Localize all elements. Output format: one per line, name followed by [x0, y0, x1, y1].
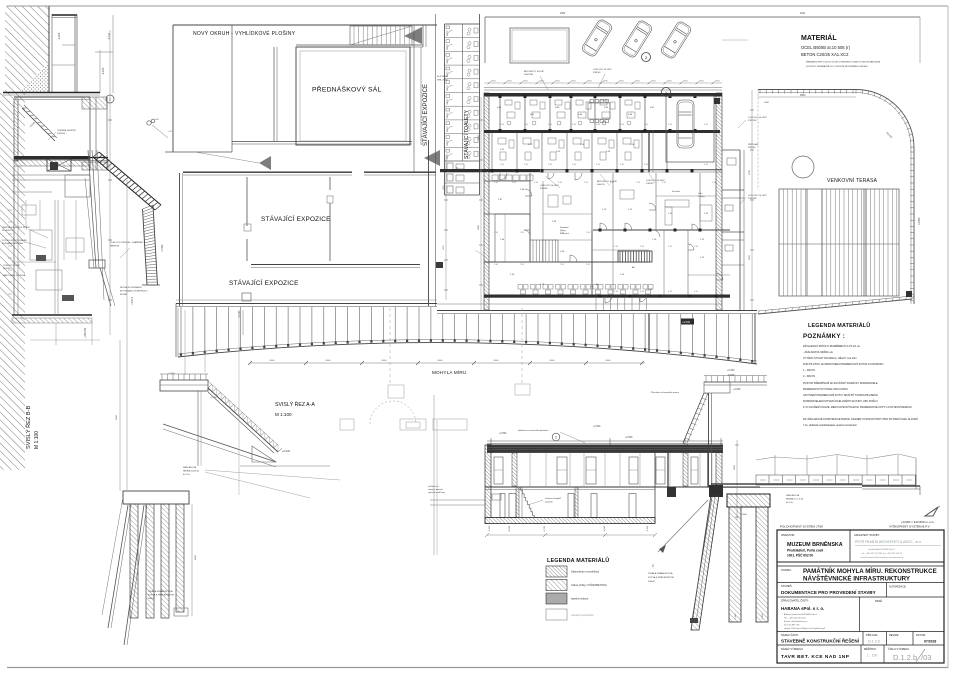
- svg-text:POD SLOUPY PROVEDEN: POD SLOUPY PROVEDEN: [2, 240, 27, 242]
- svg-text:AUTORIZACE:: AUTORIZACE:: [889, 585, 907, 589]
- svg-text:NAKOTVENÝ DO ZDIVA: NAKOTVENÝ DO ZDIVA: [3, 274, 26, 277]
- svg-text:1.14: 1.14: [694, 291, 698, 293]
- svg-text:1.14: 1.14: [548, 164, 552, 166]
- svg-text:2/62/90: 2/62/90: [646, 183, 654, 185]
- svg-text:+3 500: +3 500: [625, 436, 633, 439]
- svg-text:SIRL 200m: SIRL 200m: [437, 80, 448, 82]
- svg-text:1.14: 1.14: [572, 164, 576, 166]
- svg-text:Sálezobeton monolitický: Sálezobeton monolitický: [571, 570, 600, 574]
- svg-text:-7.100: -7.100: [762, 613, 764, 620]
- svg-text:D.1.2.b: D.1.2.b: [868, 640, 880, 644]
- svg-text:+3.91.5: +3.91.5: [131, 296, 134, 305]
- svg-text:2/62/185: 2/62/185: [748, 198, 757, 200]
- svg-text:+0.000: +0.000: [282, 449, 291, 453]
- svg-text:1 : 100: 1 : 100: [867, 654, 877, 658]
- svg-text:1.14: 1.14: [596, 124, 600, 126]
- svg-text:1.14: 1.14: [712, 182, 716, 184]
- svg-text:LEGENDA MATERIÁLŮ: LEGENDA MATERIÁLŮ: [547, 556, 609, 564]
- svg-text:1.14: 1.14: [520, 232, 524, 234]
- svg-text:přídavová vrstva lehčený beton: přídavová vrstva lehčený beton: [518, 429, 549, 432]
- svg-text:5000: 5000: [606, 360, 612, 362]
- svg-text:LEGENDA MATERIÁLŮ: LEGENDA MATERIÁLŮ: [808, 321, 870, 329]
- svg-text:1.14: 1.14: [662, 182, 666, 184]
- svg-text:ZÁKLADOVÁ PATKA O ROZMĚRECH 4.: ZÁKLADOVÁ PATKA O ROZMĚRECH 4.4*4.34 ,2e: [803, 345, 861, 348]
- svg-text:5000: 5000: [494, 360, 500, 362]
- svg-text:1.14: 1.14: [644, 124, 648, 126]
- svg-text:-7.100: -7.100: [735, 613, 737, 620]
- svg-text:OCELOVÝ SLOUP: OCELOVÝ SLOUP: [593, 68, 612, 71]
- svg-text:STÁVAJÍCÍ EXPOZICE: STÁVAJÍCÍ EXPOZICE: [422, 84, 429, 146]
- svg-text:PATRA 4.4x4.34: PATRA 4.4x4.34: [183, 470, 200, 473]
- svg-text:PETR FRANTA ARCHITEKTI & ASOC.: PETR FRANTA ARCHITEKTI & ASOC., sr.o.: [855, 540, 922, 544]
- svg-text:1.14: 1.14: [610, 182, 614, 184]
- svg-text:2941: 2941: [800, 12, 806, 15]
- svg-text:1.14: 1.14: [636, 182, 640, 184]
- svg-text:1.14: 1.14: [668, 291, 672, 293]
- svg-text:NÁZEV VÝKRESU:: NÁZEV VÝKRESU:: [781, 647, 804, 651]
- svg-text:ŠMPELNÍ: ŠMPELNÍ: [110, 245, 120, 248]
- svg-text:+0.350: +0.350: [238, 310, 241, 318]
- svg-text:1.14: 1.14: [520, 264, 524, 266]
- svg-text:+0.000 = 323.660 m.n.m.: +0.000 = 323.660 m.n.m.: [901, 520, 935, 524]
- svg-text:1.14: 1.14: [512, 182, 516, 184]
- svg-text:SVISLÝ ŘEZ A-A: SVISLÝ ŘEZ A-A: [275, 400, 315, 408]
- svg-text:5000: 5000: [478, 224, 480, 230]
- svg-text:OCEL B500B at.10 505 (r): OCEL B500B at.10 505 (r): [801, 45, 851, 50]
- svg-text:5000: 5000: [438, 360, 444, 362]
- svg-text:ZÁKLADOVÁ: ZÁKLADOVÁ: [183, 466, 197, 469]
- svg-text:1 - 300 KN: 1 - 300 KN: [803, 369, 815, 372]
- svg-text:PRŮVLAK: PRŮVLAK: [748, 143, 759, 146]
- svg-text:KOTVA S PŘEDEPNUTÍM: KOTVA S PŘEDEPNUTÍM: [148, 594, 174, 597]
- svg-text:SE STÁVAJÍCÍ KOMIPRUKCÍ: SE STÁVAJÍCÍ KOMIPRUKCÍ: [120, 290, 148, 293]
- svg-text:+4.500: +4.500: [161, 244, 164, 252]
- svg-text:-0.040: -0.040: [604, 525, 606, 532]
- svg-text:1.14: 1.14: [494, 182, 498, 184]
- svg-text:SVISLÝ ŘEZ B-B: SVISLÝ ŘEZ B-B: [24, 406, 32, 449]
- svg-text:1.14: 1.14: [668, 246, 672, 248]
- svg-text:1.14: 1.14: [704, 164, 708, 166]
- svg-text:242/160: 242/160: [57, 133, 66, 135]
- svg-text:MOHYLA MÍRU: MOHYLA MÍRU: [432, 369, 466, 375]
- svg-text:1.14: 1.14: [560, 264, 564, 266]
- svg-text:7 ks. dodávka subdodávatele oc: 7 ks. dodávka subdodávatele ocelové kons…: [803, 424, 857, 427]
- svg-text:OCELOVÝ SLOUP: OCELOVÝ SLOUP: [748, 194, 767, 197]
- svg-text:3800: 3800: [742, 514, 748, 516]
- svg-text:1.14: 1.14: [640, 246, 644, 248]
- svg-text:1.14: 1.14: [524, 124, 528, 126]
- svg-text:+3 300: +3 300: [727, 369, 735, 372]
- svg-text:stávající rozvodt: stávající rozvodt: [428, 488, 443, 491]
- svg-text:Přerušaní schematího mostu: Přerušaní schematího mostu: [651, 391, 680, 394]
- svg-text:2: 2: [645, 56, 647, 60]
- svg-text:NUTNÁ KOORDINACE: NUTNÁ KOORDINACE: [120, 286, 142, 289]
- svg-text:240/190: 240/190: [3, 268, 11, 270]
- svg-text:NOVÝ OKRUH - VYHLÍDKOVÉ PLOŠIN: NOVÝ OKRUH - VYHLÍDKOVÉ PLOŠINY: [193, 30, 296, 37]
- svg-text:-0.700: -0.700: [544, 525, 546, 532]
- svg-text:M 1:100: M 1:100: [34, 431, 40, 449]
- svg-text:OCELOVÝ SLOUP: OCELOVÝ SLOUP: [3, 264, 21, 267]
- svg-text:Lak i: Lak i: [698, 193, 703, 195]
- svg-text:+3 800: +3 800: [168, 373, 176, 375]
- svg-text:DATUM:: DATUM:: [916, 633, 926, 637]
- svg-text:2/62/60: 2/62/60: [593, 72, 601, 74]
- svg-text:-2.100: -2.100: [489, 525, 491, 532]
- svg-text:POZNÁMKY :: POZNÁMKY :: [803, 333, 845, 340]
- svg-text:2/62/180: 2/62/180: [748, 120, 757, 122]
- svg-text:1.14: 1.14: [572, 124, 576, 126]
- svg-text:5000: 5000: [270, 360, 276, 362]
- svg-text:1.14: 1.14: [620, 164, 624, 166]
- svg-text:ocelové sloupHT: ocelové sloupHT: [545, 498, 562, 500]
- svg-text:4250: 4250: [749, 254, 751, 260]
- svg-text:PRAMENCOVÝCH TRVAL PDK KOTEV.: PRAMENCOVÝCH TRVAL PDK KOTEV.: [803, 388, 849, 391]
- svg-text:2460: 2460: [764, 102, 770, 104]
- svg-text:1: 1: [665, 91, 667, 95]
- svg-text:1.14: 1.14: [500, 124, 504, 126]
- svg-text:TRVALÁ PRAMENCOVÁ: TRVALÁ PRAMENCOVÁ: [648, 572, 673, 575]
- svg-text:OCELOVÝ SLOUP: OCELOVÝ SLOUP: [540, 184, 559, 187]
- svg-text:200/ODB: 200/ODB: [524, 74, 534, 76]
- svg-text:1.14: 1.14: [534, 182, 538, 184]
- svg-text:-0.040: -0.040: [509, 525, 511, 532]
- svg-text:1.14: 1.14: [644, 164, 648, 166]
- svg-text:+3 000: +3 000: [733, 388, 741, 391]
- svg-text:KOTVA S PŘEDEPNUTÍM: KOTVA S PŘEDEPNUTÍM: [648, 576, 674, 579]
- svg-text:3b SÝHNA: 3b SÝHNA: [437, 75, 448, 78]
- svg-text:3600: 3600: [478, 134, 480, 140]
- svg-text:naPálení na: naPálení na: [428, 486, 440, 488]
- svg-text:1.14: 1.14: [614, 291, 618, 293]
- svg-text:- ZÁKLADOVÁ SPÁRA -2e: - ZÁKLADOVÁ SPÁRA -2e: [803, 351, 833, 354]
- svg-text:STAVBA:: STAVBA:: [781, 568, 792, 572]
- svg-text:-5.200: -5.200: [108, 33, 111, 40]
- svg-text:+3 800: +3 800: [210, 397, 218, 399]
- svg-text:1001, PŠČ 602 00: 1001, PŠČ 602 00: [787, 553, 813, 558]
- svg-text:1.14: 1.14: [694, 246, 698, 248]
- svg-text:600/OD: 600/OD: [597, 184, 605, 186]
- svg-text:VYTÁNO S PILOT DN 900mm. DÉLKY: VYTÁNO S PILOT DN 900mm. DÉLKY cca 10m: [803, 357, 857, 360]
- svg-text:2302: 2302: [560, 12, 566, 15]
- svg-text:DOKUMENTACE PRO PROVEDENÍ STAV: DOKUMENTACE PRO PROVEDENÍ STAVBY: [781, 588, 876, 595]
- svg-text:KOLEČKY. MINIMÁLNĚ 3x/ V ÚROVN: KOLEČKY. MINIMÁLNĚ 3x/ V ÚROVNÍ MONTÁŽNÍ…: [806, 65, 868, 68]
- svg-text:1.14: 1.14: [558, 182, 562, 184]
- svg-text:1.14: 1.14: [494, 232, 498, 234]
- svg-text:PATRA 4.4 x 4.34: PATRA 4.4 x 4.34: [786, 498, 804, 501]
- svg-text:Stavební: Stavební: [560, 226, 569, 229]
- svg-text:TAVR BET. KCE NAD 1NP: TAVR BET. KCE NAD 1NP: [781, 654, 850, 660]
- svg-text:TRVALÁ PRAMENCOVÁ: TRVALÁ PRAMENCOVÁ: [148, 590, 173, 593]
- svg-text:STÁVAJÍCÍ EXPOZICE: STÁVAJÍCÍ EXPOZICE: [261, 214, 331, 223]
- svg-text:PAMÁTNÍK MOHYLA MÍRU. REKONSTR: PAMÁTNÍK MOHYLA MÍRU. REKONSTRUKCE: [803, 567, 937, 575]
- svg-text:tepelná izolace: tepelná izolace: [571, 597, 589, 601]
- svg-text:HABANA sPol. s r. o.: HABANA sPol. s r. o.: [781, 606, 824, 611]
- svg-text:1.14: 1.14: [620, 124, 624, 126]
- svg-text:Adresa: Kounicová 66/12846: Adresa: Kounicová 66/12846 Praha 2: [784, 613, 818, 616]
- svg-text:5000: 5000: [550, 360, 556, 362]
- svg-text:+326.750: +326.750: [84, 327, 87, 338]
- svg-text:1.14: 1.14: [668, 124, 672, 126]
- svg-text:+3 500: +3 500: [499, 432, 507, 435]
- svg-text:1.14: 1.14: [596, 164, 600, 166]
- svg-text:STÁVAJÍCÍ EXPOZICE: STÁVAJÍCÍ EXPOZICE: [229, 278, 299, 287]
- svg-text:REVIZE:: REVIZE:: [889, 633, 899, 637]
- svg-text:e-mail: frantaarch@frantaarchy: e-mail: frantaarch@frantaarchy, www.fran…: [860, 556, 903, 559]
- svg-text:K VYLOUČENÍ KOLIZE. MEZI KOTEV: K VYLOUČENÍ KOLIZE. MEZI KOTEVNÍ HLAVOU …: [803, 406, 913, 409]
- svg-text:Tel... +420 224 25 20: Tel... +420 224 25 20 62: [784, 618, 806, 620]
- svg-text:5000: 5000: [326, 360, 332, 362]
- svg-text:DO ZÁKLADOVÉ KONSTRUKCE BUDOU: DO ZÁKLADOVÉ KONSTRUKCE BUDOU OSAZENY KO…: [803, 418, 918, 421]
- svg-text:stávající konstrukce: stávající konstrukce: [571, 613, 594, 617]
- svg-text:MINIMÁLNÍ KRYTÍ 50mm ŮILDE VYM: MINIMÁLNÍ KRYTÍ 50mm ŮILDE VYMEZENO PLAS…: [806, 61, 881, 64]
- svg-text:ARCHITEKT STAVBY:: ARCHITEKT STAVBY:: [854, 533, 880, 537]
- svg-text:9000: 9000: [195, 554, 197, 560]
- svg-text:1.14: 1.14: [614, 246, 618, 248]
- svg-text:1.14: 1.14: [494, 264, 498, 266]
- svg-text:tel.: +420 222 217 889, fax:: tel.: +420 222 217 889, fax: +420 222 21…: [862, 552, 903, 555]
- svg-text:OCELOVÝ SLOUP: OCELOVÝ SLOUP: [748, 116, 767, 119]
- svg-text:b=1.2e: b=1.2e: [183, 474, 191, 476]
- svg-text:+4 500: +4 500: [593, 425, 601, 428]
- svg-text:2xU160: 2xU160: [545, 502, 553, 504]
- svg-text:STÁVAJÍCÍ TOALETY: STÁVAJÍCÍ TOALETY: [463, 109, 470, 159]
- svg-text:5000: 5000: [382, 360, 388, 362]
- svg-text:1.14: 1.14: [640, 291, 644, 293]
- svg-text:NÁVŠTĚVNICKÉ INFRASTRUKTURY: NÁVŠTĚVNICKÉ INFRASTRUKTURY: [803, 575, 911, 583]
- svg-text:-3.200: -3.200: [57, 32, 61, 40]
- svg-text:+4.000: +4.000: [682, 320, 691, 324]
- svg-text:1.14: 1.14: [586, 232, 590, 234]
- svg-text:UKOTVENÍ PRAMENCOVÉ KOTVY MUSÍ: UKOTVENÍ PRAMENCOVÉ KOTVY MUSÍ BÝT DODOU…: [803, 394, 878, 397]
- svg-text:KROAZ: KROAZ: [120, 293, 128, 296]
- svg-text:6000: 6000: [116, 414, 118, 420]
- svg-text:2: 2: [555, 436, 557, 440]
- svg-text:BETONOVÝ SLOUP: BETONOVÝ SLOUP: [524, 70, 545, 73]
- svg-text:Předklášteří, Porta coeli: Předklášteří, Porta coeli: [787, 549, 823, 553]
- svg-text:M 1:100: M 1:100: [275, 412, 292, 417]
- svg-text:VÝŠKOPISNÝ SYSTÉM B.P.V: VÝŠKOPISNÝ SYSTÉM B.P.V: [889, 524, 930, 529]
- svg-text:1.14: 1.14: [584, 182, 588, 184]
- svg-text:POLOHOPISNÝ SYSTÉM JTSK: POLOHOPISNÝ SYSTÉM JTSK: [780, 524, 823, 529]
- svg-text:2: 2: [652, 564, 654, 568]
- svg-text:ZÁKLADOVÁ: ZÁKLADOVÁ: [786, 494, 800, 497]
- svg-text:E-mail: info@habanova.cz: E-mail: info@habanova.cz: [784, 621, 807, 623]
- svg-text:SOLVMOTV: SOLVMOTV: [2, 230, 14, 232]
- svg-text:300kN: 300kN: [648, 581, 655, 583]
- svg-text:1.14: 1.14: [586, 264, 590, 266]
- svg-text:OBRTNA HYDROIZOL.KČAPO: OBRTNA HYDROIZOL.KČAPO: [2, 226, 30, 229]
- svg-text:1.14: 1.14: [500, 164, 504, 166]
- svg-text:POSTUP PŘEDPÍNANÍ JE SOUČÁSTÍ: POSTUP PŘEDPÍNANÍ JE SOUČÁSTÍ DODÁVKY DO…: [803, 382, 878, 385]
- svg-text:DOD6AVATELEM KOTVENÍ OCELOVÉHO: DOD6AVATELEM KOTVENÍ OCELOVÉHO SLOUPU. A…: [803, 400, 878, 403]
- svg-text:-2.100: -2.100: [647, 525, 649, 532]
- svg-text:1.14: 1.14: [560, 232, 564, 234]
- svg-text:Lswádhsd(UB,/12030/Prshs/2: Lswádhsd(UB,/12030/Prshs/2: [868, 549, 895, 551]
- svg-text:5750: 5750: [749, 169, 751, 175]
- svg-text:Kuchlna: Kuchlna: [672, 191, 681, 193]
- svg-text:2 - 300 KN: 2 - 300 KN: [803, 375, 815, 378]
- svg-text:zastpd: 1509 Ivana Šiktjda,: zastpd: 1509 Ivana Šiktjda, t.h0,2/sp/dk…: [784, 627, 826, 630]
- svg-text:/03: /03: [921, 653, 931, 662]
- svg-text:IČO: 60 489 7 08: IČO: 60 489 7 08: [784, 624, 800, 627]
- svg-text:Prodej: Prodej: [698, 195, 705, 198]
- svg-text:-3.200: -3.200: [101, 67, 105, 75]
- svg-text:-0 990: -0 990: [727, 373, 735, 377]
- svg-text:ODKRHE KHUPKP: ODKRHE KHUPKP: [57, 130, 77, 132]
- svg-text:07/2018: 07/2018: [924, 640, 936, 644]
- svg-text:POD PILOTOU JE ZMOSTVENA PRAME: POD PILOTOU JE ZMOSTVENA PRAMENCOVÁ KOTV…: [803, 363, 884, 366]
- svg-text:MUZEUM BRNĚNSKA: MUZEUM BRNĚNSKA: [787, 540, 843, 548]
- svg-text:vzduchu v mlPozici: vzduchu v mlPozici: [428, 492, 446, 494]
- svg-text:STAVEBNĚ KONSTRUKČNÍ ŘEŠENÍ: STAVEBNĚ KONSTRUKČNÍ ŘEŠENÍ: [781, 637, 860, 644]
- svg-text:D.1.2.b: D.1.2.b: [893, 653, 917, 662]
- svg-text:300kN: 300kN: [148, 598, 155, 600]
- svg-text:2/6/190: 2/6/190: [540, 188, 548, 190]
- svg-text:3500: 3500: [734, 464, 736, 470]
- svg-text:1.14: 1.14: [704, 124, 708, 126]
- svg-text:MATERIÁL: MATERIÁL: [801, 33, 837, 42]
- svg-text:PŘEDNÁŠKOVÝ SÁL: PŘEDNÁŠKOVÝ SÁL: [312, 85, 382, 94]
- svg-text:b=1.2e: b=1.2e: [786, 502, 794, 504]
- svg-text:INVESTOR:: INVESTOR:: [781, 533, 795, 537]
- svg-text:1.14: 1.14: [524, 164, 528, 166]
- svg-text:9500: 9500: [800, 94, 806, 97]
- svg-text:VENKOVNÍ TERASA: VENKOVNÍ TERASA: [827, 177, 878, 184]
- svg-text:1.14: 1.14: [548, 124, 552, 126]
- svg-text:ROZNÁŠECÍ ZB PRÁH: ROZNÁŠECÍ ZB PRÁH: [2, 242, 23, 245]
- svg-text:10.950: 10.950: [918, 217, 921, 225]
- svg-text:BETON C20/25 XA1.XC2: BETON C20/25 XA1.XC2: [801, 52, 849, 57]
